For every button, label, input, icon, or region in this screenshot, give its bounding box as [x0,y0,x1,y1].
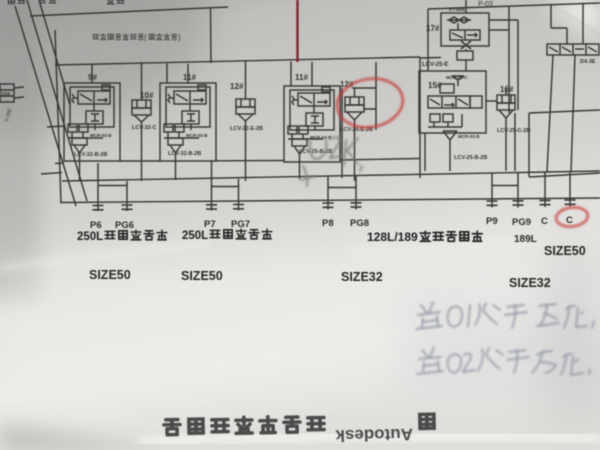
svg-text:SIZE50: SIZE50 [89,268,131,282]
svg-text:P-03: P-03 [478,1,493,8]
svg-text:MCR-03-B: MCR-03-B [458,134,480,139]
svg-text:P6: P6 [90,220,102,231]
svg-text:PG9: PG9 [512,217,531,228]
svg-text:SIZE50: SIZE50 [544,244,586,258]
svg-text:SIZE32: SIZE32 [509,276,551,290]
svg-text:250L: 250L [182,230,208,242]
svg-text:MCR-03-C: MCR-03-C [446,75,468,80]
svg-text:128L/189: 128L/189 [367,230,418,244]
svg-text:10#: 10# [140,91,154,100]
svg-text:PG6: PG6 [115,220,134,231]
svg-text:250L: 250L [77,231,103,243]
svg-text:LCV-32-B-2B: LCV-32-B-2B [74,152,107,158]
svg-text:LCV-25-E: LCV-25-E [422,62,448,68]
svg-text:17#: 17# [426,24,440,33]
svg-text:C: C [541,216,548,227]
svg-text:SIZE50: SIZE50 [181,269,223,283]
svg-text:SIZE32: SIZE32 [341,270,383,284]
svg-text:LCV-32-B-2B: LCV-32-B-2B [168,151,201,157]
svg-text:MCR-03-B: MCR-03-B [90,133,112,138]
svg-text:LCV-25-C-2B: LCV-25-C-2B [497,128,530,134]
svg-text:11#: 11# [295,73,308,82]
svg-text:10#: 10# [1,92,10,98]
svg-text:15#: 15# [428,81,442,90]
svg-text:MCR-03-B: MCR-03-B [310,135,332,140]
svg-text:): ) [178,33,181,42]
svg-text:PG8: PG8 [350,218,369,229]
svg-text:LCV-32-C: LCV-32-C [132,125,156,131]
svg-text:D4-3E: D4-3E [580,59,596,65]
svg-text:P7: P7 [204,219,216,230]
svg-text:16#: 16# [500,85,514,94]
svg-text:LCV-32-E-2B: LCV-32-E-2B [230,126,263,132]
svg-text:MCR-03-B: MCR-03-B [186,133,208,138]
svg-text:11#: 11# [183,73,196,82]
svg-text:P8: P8 [322,218,334,229]
svg-text:(: ( [144,33,147,42]
svg-text:LCV-25-B-2B: LCV-25-B-2B [299,149,332,155]
svg-text:PG7: PG7 [231,219,250,230]
svg-text:LCV-25-B-2B: LCV-25-B-2B [454,155,487,161]
svg-text:12#: 12# [230,82,244,91]
svg-text:189L: 189L [514,234,537,245]
svg-text:9#: 9# [88,73,97,82]
svg-text:Autodesk: Autodesk [335,425,413,446]
svg-text:C: C [566,215,573,226]
svg-text:ET-5BB: ET-5BB [449,7,466,12]
svg-text:P9: P9 [486,216,498,227]
